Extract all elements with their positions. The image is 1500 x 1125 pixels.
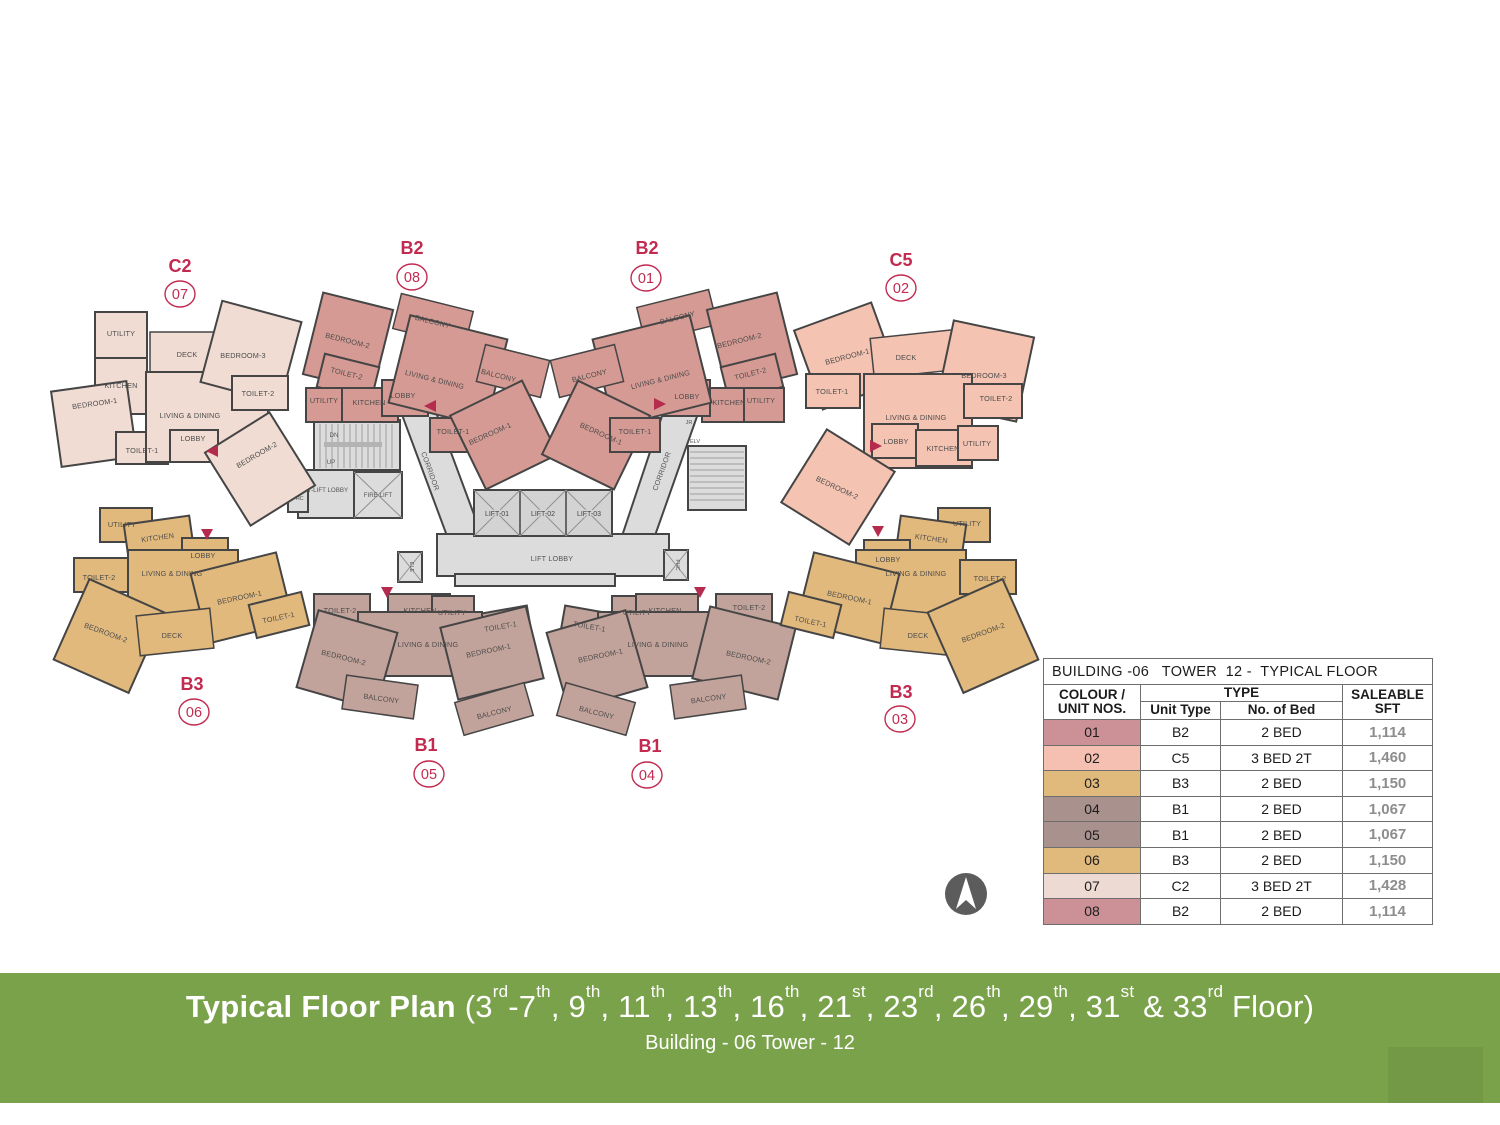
- footer-title-floors: (3rd-7th, 9th, 11th, 13th, 16th, 21st, 2…: [465, 989, 1314, 1024]
- unit-type-label: C2: [168, 256, 191, 276]
- sft-cell: 1,067: [1343, 822, 1433, 848]
- footer-band: Typical Floor Plan (3rd-7th, 9th, 11th, …: [0, 973, 1500, 1103]
- unit-no-cell: 03: [1044, 771, 1141, 797]
- lift-03-label: LIFT-03: [577, 511, 601, 518]
- sft-cell: 1,114: [1343, 720, 1433, 746]
- sft-cell: 1,067: [1343, 796, 1433, 822]
- table-row: 02 C5 3 BED 2T 1,460: [1044, 745, 1433, 771]
- room-label: BEDROOM-3: [220, 351, 266, 360]
- room-label: LIVING & DINING: [160, 411, 221, 420]
- room-label: LOBBY: [180, 434, 205, 443]
- room-label: LOBBY: [390, 391, 415, 400]
- jr-label: JR: [686, 420, 693, 426]
- lift-02-label: LIFT-02: [531, 511, 555, 518]
- table-row: 07 C2 3 BED 2T 1,428: [1044, 873, 1433, 899]
- room-label: KITCHEN: [104, 381, 137, 390]
- column-header-unit-nos: COLOUR / UNIT NOS.: [1044, 685, 1141, 720]
- unit-no-cell: 05: [1044, 822, 1141, 848]
- unit-b1-04: TOILET-1 UTILITY KITCHEN TOILET-2 LIVING…: [547, 594, 796, 735]
- room-label: UTILITY: [953, 519, 981, 528]
- sft-cell: 1,460: [1343, 745, 1433, 771]
- bed-cell: 2 BED: [1221, 720, 1343, 746]
- room-label: TOILET-1: [619, 427, 652, 436]
- footer-title-bold: Typical Floor Plan: [186, 989, 456, 1024]
- room-label: TOILET-2: [324, 606, 357, 615]
- ele-label: ELE: [408, 562, 414, 573]
- lift-01-label: LIFT-01: [485, 511, 509, 518]
- unit-summary-table: BUILDING -06 TOWER 12 - TYPICAL FLOOR CO…: [1043, 658, 1433, 925]
- room-label: TOILET-2: [980, 394, 1013, 403]
- unit-number-label: 01: [638, 271, 654, 287]
- unit-number-label: 02: [893, 281, 909, 297]
- unit-type-cell: B2: [1141, 720, 1221, 746]
- column-header-unit-type: Unit Type: [1141, 702, 1221, 720]
- unit-type-cell: B2: [1141, 899, 1221, 925]
- unit-type-cell: B1: [1141, 796, 1221, 822]
- table-row: 03 B3 2 BED 1,150: [1044, 771, 1433, 797]
- fire-lift-label: FIRE LIFT: [364, 492, 393, 499]
- room-label: KITCHEN: [352, 398, 385, 407]
- sft-cell: 1,428: [1343, 873, 1433, 899]
- room-label: KITCHEN: [403, 606, 436, 615]
- unit-c5-02: BEDROOM-1 DECK BEDROOM-3 TOILET-1 LIVING…: [781, 303, 1034, 545]
- north-arrow-icon: [945, 873, 987, 915]
- room-label: TOILET-2: [242, 389, 275, 398]
- stair-up-label: UP: [327, 459, 336, 466]
- table-title: BUILDING -06 TOWER 12 - TYPICAL FLOOR: [1044, 659, 1433, 685]
- unit-no-cell: 06: [1044, 847, 1141, 873]
- room-label: TOILET-1: [126, 446, 159, 455]
- bed-cell: 2 BED: [1221, 771, 1343, 797]
- table-row: 05 B1 2 BED 1,067: [1044, 822, 1433, 848]
- bed-cell: 2 BED: [1221, 822, 1343, 848]
- room-label: LIVING & DINING: [398, 640, 459, 649]
- unit-type-label: B1: [638, 736, 661, 756]
- unit-no-cell: 02: [1044, 745, 1141, 771]
- unit-number-label: 04: [639, 768, 655, 784]
- room-label: BEDROOM-3: [961, 371, 1007, 380]
- unit-type-label: B2: [635, 238, 658, 258]
- sft-cell: 1,150: [1343, 771, 1433, 797]
- room-label: TOILET-2: [974, 574, 1007, 583]
- room-label: LIVING & DINING: [142, 569, 203, 578]
- room-label: LOBBY: [883, 437, 908, 446]
- unit-type-label: B3: [180, 674, 203, 694]
- unit-type-label: B2: [400, 238, 423, 258]
- unit-no-cell: 07: [1044, 873, 1141, 899]
- unit-no-cell: 08: [1044, 899, 1141, 925]
- footer-title: Typical Floor Plan (3rd-7th, 9th, 11th, …: [0, 989, 1500, 1025]
- unit-number-label: 06: [186, 705, 202, 721]
- room-label: LIVING & DINING: [628, 640, 689, 649]
- unit-type-cell: C2: [1141, 873, 1221, 899]
- room-label: LIVING & DINING: [886, 569, 947, 578]
- table-row: 06 B3 2 BED 1,150: [1044, 847, 1433, 873]
- unit-b1-05: TOILET-2 KITCHEN UTILITY TOILET-1 LIVING…: [297, 594, 544, 735]
- entry-arrow: [872, 526, 884, 537]
- unit-type-cell: B3: [1141, 847, 1221, 873]
- room-label: TOILET-1: [816, 387, 849, 396]
- floor-plan: LIFT-01 LIFT-02 LIFT-03 LIFT LOBBY CORRI…: [0, 0, 1500, 1125]
- lift-lobby-step: [455, 574, 615, 586]
- room-label: UTILITY: [438, 608, 466, 617]
- room-label: LOBBY: [674, 392, 699, 401]
- unit-no-cell: 01: [1044, 720, 1141, 746]
- room-label: UTILITY: [623, 608, 651, 617]
- unit-number-label: 05: [421, 767, 437, 783]
- column-header-saleable-sft: SALEABLE SFT: [1343, 685, 1433, 720]
- room-label: TOILET-2: [83, 573, 116, 582]
- lift-lobby-label: LIFT LOBBY: [531, 554, 574, 563]
- unit-type-cell: C5: [1141, 745, 1221, 771]
- floor-plan-page: { "plan": { "units": [ {"type":"C2","num…: [0, 0, 1500, 1125]
- bed-cell: 3 BED 2T: [1221, 745, 1343, 771]
- room-label: KITCHEN: [712, 398, 745, 407]
- unit-type-label: C5: [889, 250, 912, 270]
- room-label: UTILITY: [108, 520, 136, 529]
- unit-type-cell: B1: [1141, 822, 1221, 848]
- room-label: UTILITY: [107, 329, 135, 338]
- room-label: DECK: [908, 631, 929, 640]
- footer-corner-patch: [1388, 1047, 1483, 1103]
- unit-number-label: 08: [404, 270, 420, 286]
- room-label: LOBBY: [190, 551, 215, 560]
- sft-cell: 1,150: [1343, 847, 1433, 873]
- room-label: TOILET-2: [733, 603, 766, 612]
- fhc-label: FHC: [674, 559, 680, 570]
- room: [306, 388, 342, 422]
- room-label: KITCHEN: [926, 444, 959, 453]
- elv-label: ELV: [690, 439, 700, 445]
- table-row: 04 B1 2 BED 1,067: [1044, 796, 1433, 822]
- column-header-no-of-bed: No. of Bed: [1221, 702, 1343, 720]
- room-label: DECK: [896, 353, 917, 362]
- stair-rail: [324, 442, 382, 447]
- room-label: DECK: [162, 631, 183, 640]
- unit-type-cell: B3: [1141, 771, 1221, 797]
- bed-cell: 2 BED: [1221, 899, 1343, 925]
- bed-cell: 2 BED: [1221, 796, 1343, 822]
- unit-b3-06: UTILITY KITCHEN LOBBY TOILET-2 LIVING & …: [54, 508, 310, 693]
- table-row: 08 B2 2 BED 1,114: [1044, 899, 1433, 925]
- room-label: LIVING & DINING: [886, 413, 947, 422]
- unit-number-label: 03: [892, 712, 908, 728]
- room-label: LOBBY: [875, 555, 900, 564]
- table-row: 01 B2 2 BED 1,114: [1044, 720, 1433, 746]
- room-label: KITCHEN: [648, 606, 681, 615]
- room: [744, 388, 784, 422]
- room-label: TOILET-1: [437, 427, 470, 436]
- column-header-type-group: TYPE: [1141, 685, 1343, 702]
- unit-type-label: B1: [414, 735, 437, 755]
- bed-cell: 3 BED 2T: [1221, 873, 1343, 899]
- unit-type-label: B3: [889, 682, 912, 702]
- unit-number-label: 07: [172, 287, 188, 303]
- room-label: UTILITY: [310, 396, 338, 405]
- unit-c2-07: UTILITY KITCHEN BEDROOM-1 TOILET-1 DECK …: [51, 301, 315, 526]
- sft-cell: 1,114: [1343, 899, 1433, 925]
- unit-b3-03: UTILITY KITCHEN LOBBY LIVING & DINING TO…: [781, 508, 1039, 693]
- footer-subtitle: Building - 06 Tower - 12: [0, 1032, 1500, 1055]
- room-label: UTILITY: [963, 439, 991, 448]
- unit-no-cell: 04: [1044, 796, 1141, 822]
- room-label: UTILITY: [747, 396, 775, 405]
- bed-cell: 2 BED: [1221, 847, 1343, 873]
- room-label: DECK: [177, 350, 198, 359]
- stair-dn-label: DN: [330, 432, 339, 439]
